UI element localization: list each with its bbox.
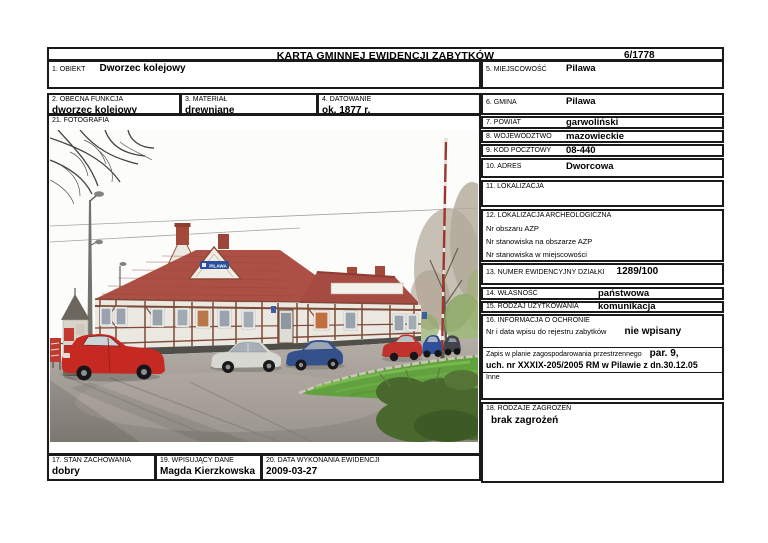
field-dzialka-value: 1289/100 [617,266,659,277]
field-datowanie: 4. DATOWANIE ok. 1877 r. [317,93,481,115]
heritage-card: KARTA GMINNEJ EWIDENCJI ZABYTKÓW 6/1778 … [47,47,724,485]
field-powiat-label: 7. POWIAT [486,119,566,127]
station-photo: PILAWA [50,130,478,442]
ochrona-rejestr-label: Nr i data wpisu do rejestru zabytków [486,328,606,336]
field-adres-value: Dworcowa [566,161,614,172]
ochrona-rejestr-value: nie wpisany [624,327,681,337]
field-ochrona-label: 16. INFORMACJA O OCHRONIE [486,317,719,325]
field-obiekt-label: 1. OBIEKT [52,63,85,74]
field-obiekt-value: Dworzec kolejowy [99,63,185,74]
field-uzytkowanie-value: komunikacja [598,302,656,312]
ochrona-inne-label: Inne [486,374,719,382]
ochrona-inne-section: Inne [483,373,722,383]
field-uzytkowanie-label: 15. RODZAJ UŻYTKOWANIA [486,303,598,311]
field-lokalizacja-label: 11. LOKALIZACJA [486,183,719,191]
field-adres: 10. ADRES Dworcowa [481,158,724,178]
field-obecna-funkcja-label: 2. OBECNA FUNKCJA [52,96,176,104]
field-lokarch-line3: Nr stanowiska w miejscowości [486,251,719,259]
field-wpisujacy-label: 19. WPISUJĄCY DANE [160,457,257,465]
field-wojewodztwo-value: mazowieckie [566,132,624,142]
field-wojewodztwo: 8. WOJEWÓDZTWO mazowieckie [481,130,724,143]
field-ochrona: 16. INFORMACJA O OCHRONIE Nr i data wpis… [481,314,724,400]
field-data-wykonania: 20. DATA WYKONANIA EWIDENCJI 2009-03-27 [261,454,481,481]
field-dzialka-label: 13. NUMER EWIDENCYJNY DZIAŁKI [486,266,605,277]
field-gmina: 6. GMINA Pilawa [481,93,724,115]
field-material: 3. MATERIAŁ drewniane [180,93,318,115]
field-wlasnosc-label: 14. WŁASNOŚĆ [486,290,598,298]
field-wpisujacy: 19. WPISUJĄCY DANE Magda Kierzkowska [155,454,262,481]
card-header: KARTA GMINNEJ EWIDENCJI ZABYTKÓW 6/1778 [47,47,724,61]
field-lokarch-line2: Nr stanowiska na obszarze AZP [486,238,719,246]
field-lokarch-label: 12. LOKALIZACJA ARCHEOLOGICZNA [486,212,719,220]
field-powiat-value: garwoliński [566,118,618,128]
field-data-value: 2009-03-27 [266,467,476,477]
field-lokarch-line1: Nr obszaru AZP [486,225,719,233]
field-fotografia: 21. FOTOGRAFIA [47,114,481,455]
heritage-card-page: KARTA GMINNEJ EWIDENCJI ZABYTKÓW 6/1778 … [0,0,768,543]
field-zagrozenia-value: brak zagrożeń [491,416,719,426]
field-material-label: 3. MATERIAŁ [185,96,313,104]
field-stan-zachowania: 17. STAN ZACHOWANIA dobry [47,454,156,481]
ochrona-plan-value2: uch. nr XXXIX-205/2005 RM w Pilawie z dn… [486,360,719,370]
field-numer-dzialki: 13. NUMER EWIDENCYJNY DZIAŁKI 1289/100 [481,263,724,285]
field-gmina-value: Pilawa [566,96,596,107]
ochrona-plan-label: Zapis w planie zagospodarowania przestrz… [486,349,642,359]
field-lok-archeologiczna: 12. LOKALIZACJA ARCHEOLOGICZNA Nr obszar… [481,209,724,262]
field-zagrozenia-label: 18. RODZAJE ZAGROŻEŃ [486,405,719,413]
field-adres-label: 10. ADRES [486,161,566,171]
field-obecna-funkcja: 2. OBECNA FUNKCJA dworzec kolejowy [47,93,181,115]
field-obiekt: 1. OBIEKT Dworzec kolejowy [47,60,481,89]
field-kod-label: 9. KOD POCZTOWY [486,147,566,155]
field-gmina-label: 6. GMINA [486,96,566,107]
field-miejscowosc: 5. MIEJSCOWOŚĆ Pilawa [481,60,724,89]
field-lokalizacja: 11. LOKALIZACJA [481,180,724,207]
field-stan-value: dobry [52,467,151,477]
field-miejscowosc-value: Pilawa [566,63,596,74]
field-kod-pocztowy: 9. KOD POCZTOWY 08-440 [481,144,724,157]
field-kod-value: 08-440 [566,146,596,156]
field-wojewodztwo-label: 8. WOJEWÓDZTWO [486,133,566,141]
field-rodzaje-zagrozen: 18. RODZAJE ZAGROŻEŃ brak zagrożeń [481,402,724,483]
field-rodzaj-uzytkowania: 15. RODZAJ UŻYTKOWANIA komunikacja [481,301,724,313]
field-data-label: 20. DATA WYKONANIA EWIDENCJI [266,457,476,465]
field-wlasnosc-value: państwowa [598,289,649,299]
billboard [50,338,61,362]
ochrona-rejestr-section: 16. INFORMACJA O OCHRONIE Nr i data wpis… [483,316,722,347]
ochrona-plan-section: Zapis w planie zagospodarowania przestrz… [483,347,722,373]
field-powiat: 7. POWIAT garwoliński [481,116,724,129]
ochrona-plan-value1: par. 9, [650,349,679,359]
field-wpisujacy-value: Magda Kierzkowska [160,467,257,477]
station-sign-text: PILAWA [209,263,227,268]
field-fotografia-label: 21. FOTOGRAFIA [52,117,476,125]
field-datowanie-label: 4. DATOWANIE [322,96,476,104]
field-wlasnosc: 14. WŁASNOŚĆ państwowa [481,287,724,300]
field-stan-label: 17. STAN ZACHOWANIA [52,457,151,465]
field-miejscowosc-label: 5. MIEJSCOWOŚĆ [486,63,566,74]
